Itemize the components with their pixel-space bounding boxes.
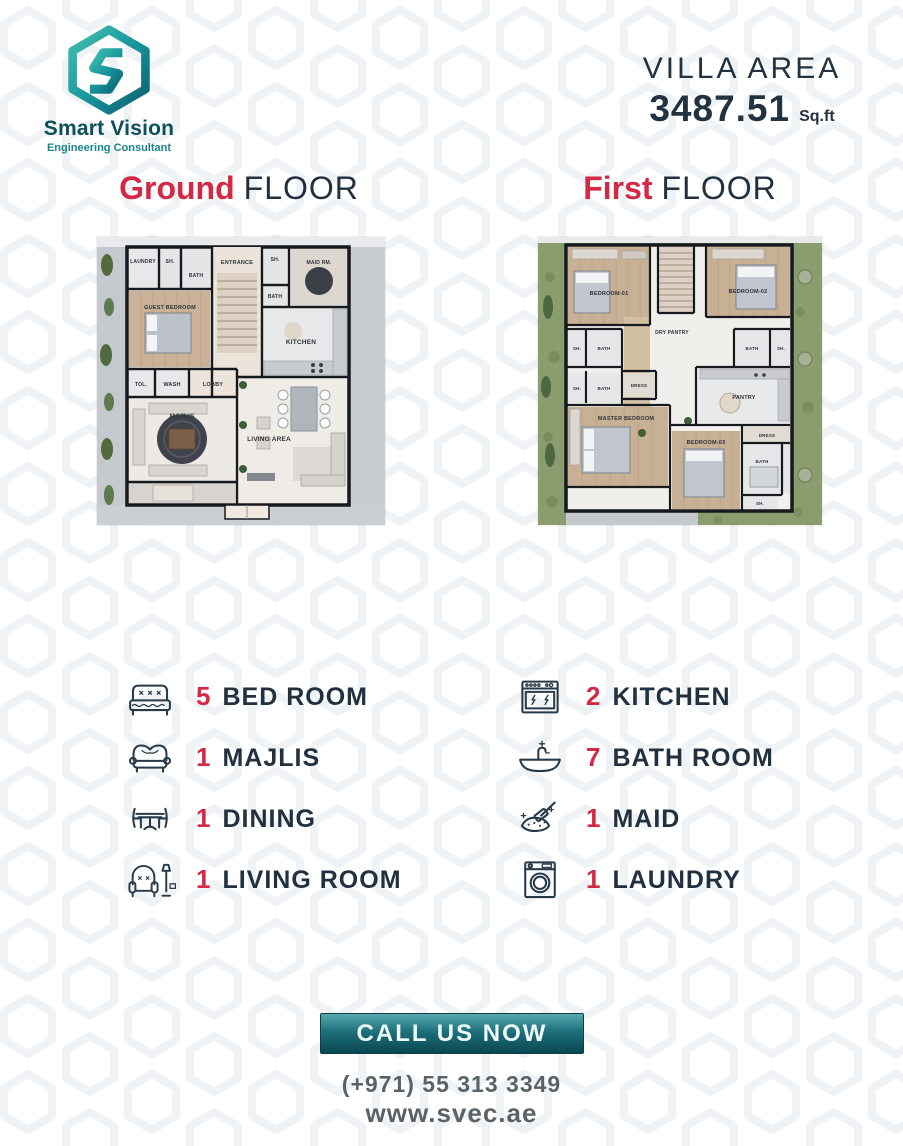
legend-text: 1LIVING ROOM	[196, 864, 402, 895]
call-us-now-button[interactable]: CALL US NOW	[320, 1013, 584, 1054]
room-label: SH.	[166, 259, 175, 265]
bathtub-icon	[514, 733, 566, 782]
room-label: LAUNDRY	[130, 259, 156, 265]
legend-left-column: 5BED ROOM 1MAJLIS	[124, 672, 402, 904]
room-label: TOL.	[135, 382, 148, 388]
room-label: LIVING AREA	[247, 436, 291, 443]
legend-label: KITCHEN	[612, 683, 730, 711]
legend-label: MAJLIS	[222, 744, 320, 772]
legend-label: LAUNDRY	[612, 866, 740, 894]
first-floor-heading-rest: FLOOR	[662, 170, 777, 206]
bed-icon	[124, 672, 176, 721]
dining-icon	[124, 794, 176, 843]
room-label: BATH	[598, 386, 611, 391]
hexagon-s-logo-icon	[59, 24, 159, 116]
room-label: MAJLIS	[169, 413, 194, 420]
room-label: PANTRY	[732, 395, 755, 401]
villa-area-label: VILLA AREA	[600, 52, 884, 86]
legend-item-laundry: 1LAUNDRY	[514, 855, 774, 904]
ground-floor-heading-rest: FLOOR	[244, 170, 359, 206]
legend-count: 7	[586, 742, 601, 772]
room-label: BEDROOM-01	[590, 291, 629, 297]
room-label: BEDROOM-02	[729, 289, 768, 295]
legend-text: 1LAUNDRY	[586, 864, 741, 895]
washing-machine-icon	[514, 855, 566, 904]
room-label: BATH	[268, 294, 283, 300]
legend-text: 5BED ROOM	[196, 681, 368, 712]
website-url: www.svec.ae	[0, 1098, 903, 1129]
legend-count: 1	[196, 742, 211, 772]
legend-label: DINING	[222, 805, 316, 833]
room-label: DRESS	[631, 383, 648, 388]
room-label: SH.	[777, 346, 785, 351]
smart-vision-logo: Smart Vision Engineering Consultant	[40, 24, 178, 154]
brand-tagline: Engineering Consultant	[40, 142, 178, 154]
legend-item-majlis: 1MAJLIS	[124, 733, 402, 782]
room-label: DRESS	[759, 433, 776, 438]
first-floor-plan-image: BEDROOM-01 BEDROOM-02 DRY PANTRY SH. BAT…	[538, 237, 822, 525]
ground-floor-heading: GroundFLOOR	[89, 170, 389, 207]
legend-label: LIVING ROOM	[222, 866, 401, 894]
legend-label: BED ROOM	[222, 683, 368, 711]
room-label: BATH	[756, 459, 769, 464]
sofa-icon	[124, 733, 176, 782]
room-label: BATH	[598, 346, 611, 351]
legend-text: 1MAID	[586, 803, 680, 834]
room-label: LOBBY	[203, 382, 223, 388]
legend-item-bed-room: 5BED ROOM	[124, 672, 402, 721]
room-label: BATH	[189, 273, 204, 279]
room-label: KITCHEN	[286, 339, 316, 346]
legend-item-living-room: 1LIVING ROOM	[124, 855, 402, 904]
legend-count: 1	[586, 864, 601, 894]
room-label: WASH	[163, 382, 180, 388]
legend-text: 1DINING	[196, 803, 316, 834]
room-label: BATH	[746, 346, 759, 351]
legend-count: 1	[196, 864, 211, 894]
room-label: SH.	[573, 346, 581, 351]
legend-count: 1	[586, 803, 601, 833]
room-label: MASTER BEDROOM	[598, 416, 654, 422]
room-label: SH.	[756, 501, 764, 506]
legend-item-kitchen: 2KITCHEN	[514, 672, 774, 721]
first-floor-heading-accent: First	[583, 170, 652, 206]
legend-label: BATH ROOM	[612, 744, 773, 772]
room-label: MAID RM.	[307, 260, 332, 266]
legend-text: 2KITCHEN	[586, 681, 731, 712]
legend-text: 7BATH ROOM	[586, 742, 774, 773]
ground-floor-plan-image: LAUNDRY SH. BATH ENTRANCE SH. BATH MAID …	[97, 237, 385, 525]
villa-area-block: VILLA AREA 3487.51Sq.ft	[600, 52, 884, 130]
first-floor-heading: FirstFLOOR	[530, 170, 830, 207]
room-label: SH.	[271, 257, 280, 263]
legend-count: 1	[196, 803, 211, 833]
legend-item-bath-room: 7BATH ROOM	[514, 733, 774, 782]
legend-count: 2	[586, 681, 601, 711]
stove-icon	[514, 672, 566, 721]
room-label: DRY PANTRY	[655, 330, 689, 336]
brand-name: Smart Vision	[40, 117, 178, 141]
legend-text: 1MAJLIS	[196, 742, 320, 773]
villa-area-value: 3487.51	[649, 88, 790, 129]
flyer-page: Smart Vision Engineering Consultant VILL…	[0, 0, 903, 1146]
legend-item-maid: 1MAID	[514, 794, 774, 843]
armchair-icon	[124, 855, 176, 904]
ground-floor-heading-accent: Ground	[119, 170, 235, 206]
room-label: ENTRANCE	[221, 260, 253, 266]
villa-area-unit: Sq.ft	[799, 108, 835, 125]
room-label: GUEST BEDROOM	[144, 305, 196, 311]
legend-count: 5	[196, 681, 211, 711]
legend-label: MAID	[612, 805, 680, 833]
legend-item-dining: 1DINING	[124, 794, 402, 843]
cleaning-icon	[514, 794, 566, 843]
legend-right-column: 2KITCHEN 7BATH ROOM	[514, 672, 774, 904]
room-label: BEDROOM-03	[687, 440, 726, 446]
room-label: SH.	[573, 386, 581, 391]
phone-number: (+971) 55 313 3349	[0, 1071, 903, 1098]
